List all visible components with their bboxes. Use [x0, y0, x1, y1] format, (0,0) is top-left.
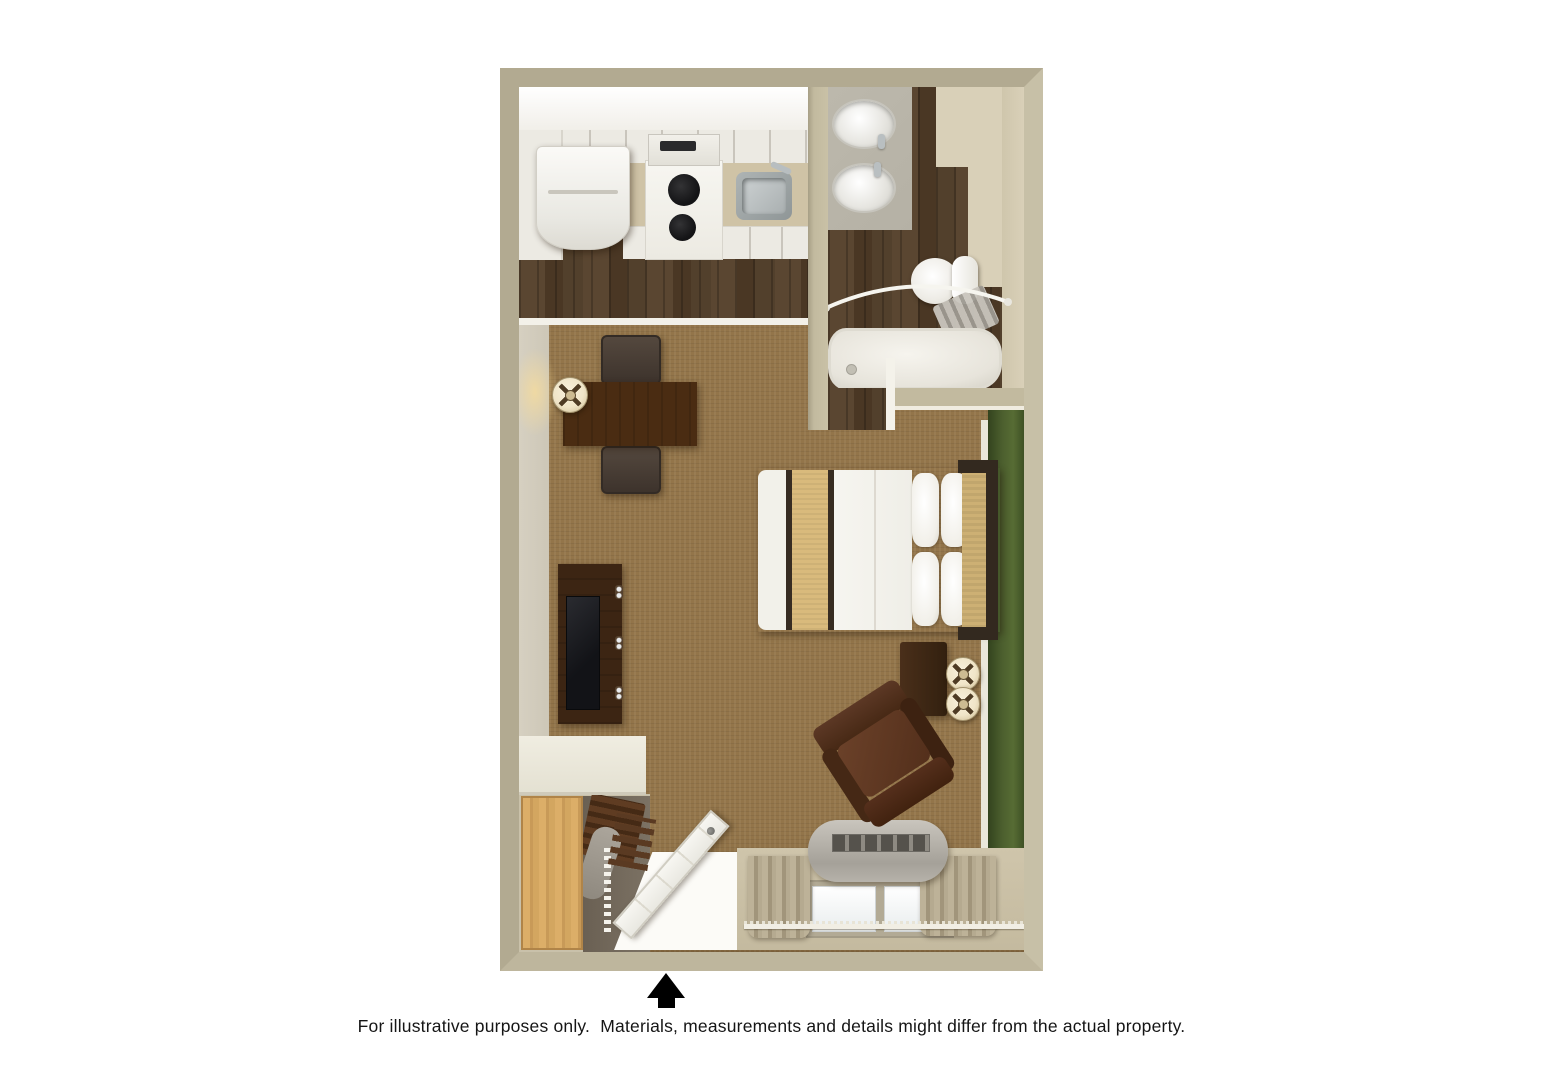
outer-wall-frame	[500, 68, 1043, 971]
disclaimer-text: For illustrative purposes only. Material…	[0, 1016, 1543, 1037]
floor-plan-page: For illustrative purposes only. Material…	[0, 0, 1543, 1080]
entrance-arrow-head	[647, 973, 685, 998]
entrance-arrow-stem	[658, 997, 675, 1008]
